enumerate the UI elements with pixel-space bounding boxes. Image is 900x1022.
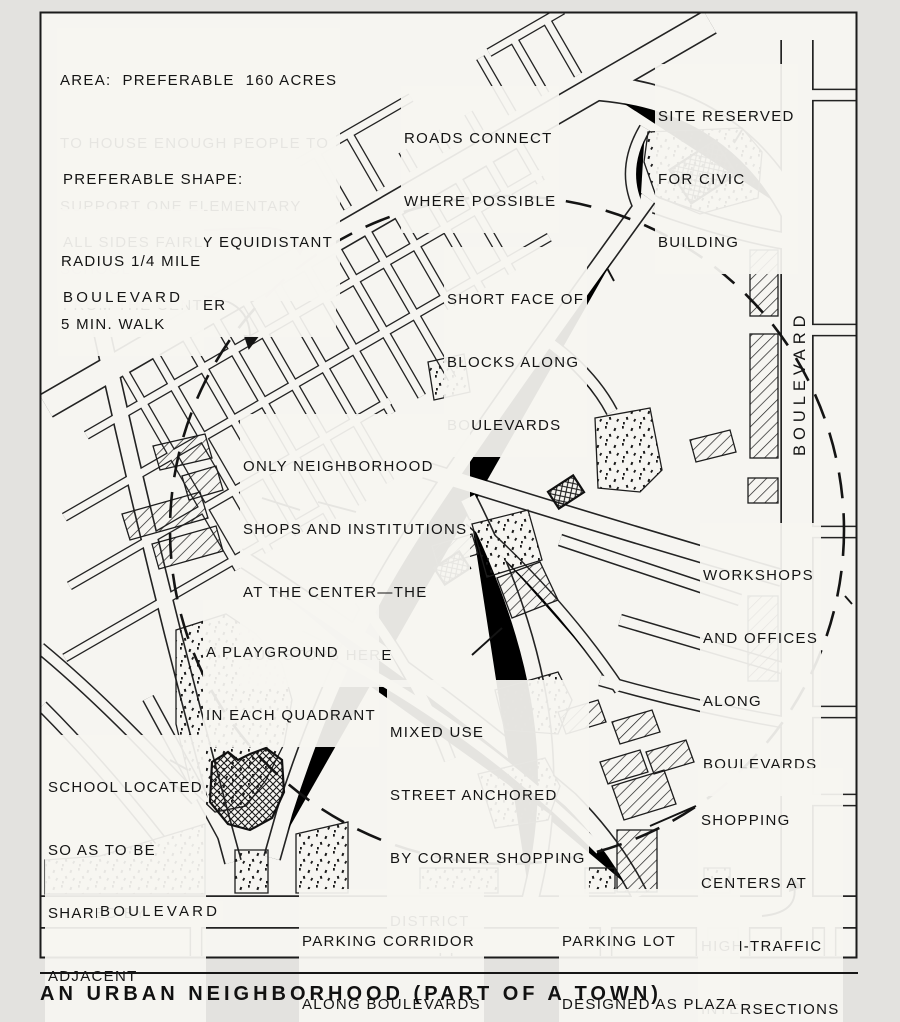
text-line: WHERE POSSIBLE: [404, 191, 556, 212]
annotation-playground: A PLAYGROUND IN EACH QUADRANT: [203, 600, 379, 747]
text-line: SITE RESERVED: [658, 106, 795, 127]
parking-strip: [296, 822, 348, 893]
text-line: STREET ANCHORED: [390, 785, 586, 806]
text-line: SCHOOL LOCATED: [48, 777, 203, 798]
playground-ne: [595, 408, 662, 492]
annotation-school: SCHOOL LOCATED SO AS TO BE SHARED BY ADJ…: [45, 735, 206, 1022]
label-boulevard-bottom: BOULEVARD: [97, 901, 223, 922]
text-line: PREFERABLE SHAPE:: [63, 169, 333, 190]
text-line: ROADS CONNECT: [404, 128, 556, 149]
text-line: AREA: PREFERABLE 160 ACRES: [60, 70, 337, 91]
annotation-radius: RADIUS 1/4 MILE 5 MIN. WALK: [58, 209, 204, 356]
text-line: BUILDING: [658, 232, 795, 253]
text-line: ONLY NEIGHBORHOOD: [243, 456, 467, 477]
text-line: SHOPS AND INSTITUTIONS: [243, 519, 467, 540]
text-line: PARKING CORRIDOR: [302, 931, 481, 952]
page-title: AN URBAN NEIGHBORHOOD (PART OF A TOWN): [40, 983, 662, 1006]
text-line: AND OFFICES: [703, 628, 818, 649]
annotation-workshops: WORKSHOPS AND OFFICES ALONG BOULEVARDS: [700, 523, 821, 796]
text-line: PARKING LOT: [562, 931, 737, 952]
text-line: BLOCKS ALONG: [447, 352, 584, 373]
parking-strip: [235, 850, 268, 893]
scanned-plan-page: AREA: PREFERABLE 160 ACRES TO HOUSE ENOU…: [0, 0, 900, 1022]
text-line: A PLAYGROUND: [206, 642, 376, 663]
text-line: ALONG: [703, 691, 818, 712]
text-line: IN EACH QUADRANT: [206, 705, 376, 726]
text-line: FOR CIVIC: [658, 169, 795, 190]
caption-rule: [40, 972, 858, 974]
text-line: SHORT FACE OF: [447, 289, 584, 310]
label-boulevard-left: BOULEVARD: [60, 287, 186, 308]
text-line: MIXED USE: [390, 722, 586, 743]
text-line: SHOPPING: [701, 810, 840, 831]
text-line: WORKSHOPS: [703, 565, 818, 586]
label-boulevard-right: BOULEVARD: [791, 456, 900, 475]
annotation-civic-site: SITE RESERVED FOR CIVIC BUILDING: [655, 64, 798, 274]
text-line: BOULEVARD: [791, 310, 810, 456]
text-line: RADIUS 1/4 MILE: [61, 251, 201, 272]
text-line: SO AS TO BE: [48, 840, 203, 861]
annotation-roads-connect: ROADS CONNECT WHERE POSSIBLE: [401, 86, 559, 233]
text-line: BY CORNER SHOPPING: [390, 848, 586, 869]
text-line: 5 MIN. WALK: [61, 314, 201, 335]
